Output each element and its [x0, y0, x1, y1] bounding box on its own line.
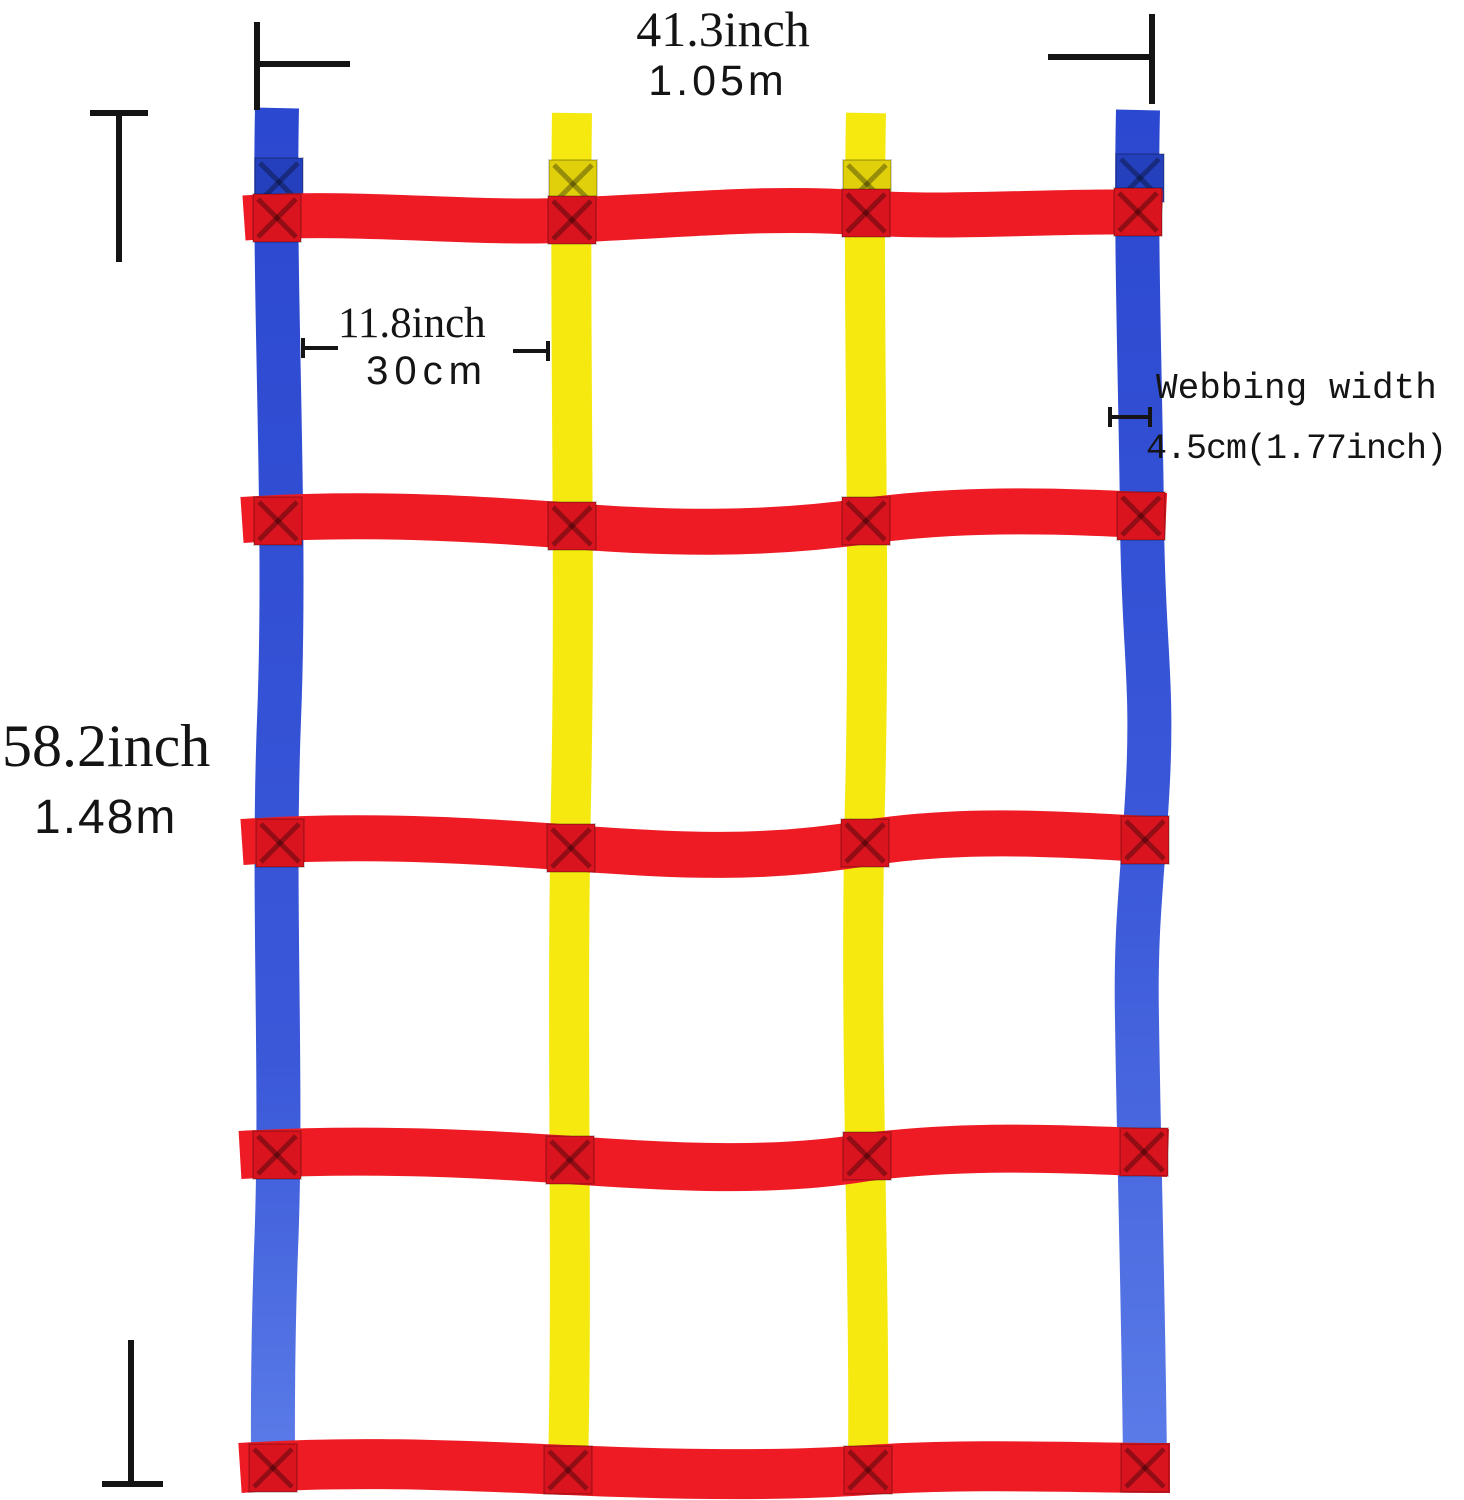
height-label-imperial: 58.2inch	[2, 716, 210, 776]
net-diagram-svg	[0, 0, 1464, 1500]
strap-blue-left	[273, 108, 282, 1468]
height-label-metric: 1.48m	[34, 794, 177, 842]
webbing-width-value: 4.5cm(1.77inch)	[1146, 432, 1446, 467]
spacing-label-imperial: 11.8inch	[338, 302, 486, 345]
spacing-label-metric: 30cm	[352, 351, 502, 391]
diagram-canvas: 41.3inch 1.05m 11.8inch 30cm 58.2inch 1.…	[0, 0, 1464, 1500]
strap-yellow-1	[568, 113, 573, 1468]
width-label-metric: 1.05m	[598, 60, 838, 103]
red-strap-row-3	[242, 833, 1166, 854]
red-strap-row-4	[240, 1149, 1168, 1168]
strap-yellow-2	[863, 113, 868, 1468]
webbing-width-label: Webbing width	[1156, 371, 1437, 407]
red-strap-row-2	[242, 511, 1166, 531]
strap-blue-right	[1137, 110, 1150, 1468]
red-strap-row-1	[244, 210, 1162, 221]
horizontal-straps	[240, 210, 1170, 1474]
width-label-imperial: 41.3inch	[598, 4, 848, 54]
red-strap-row-5	[240, 1464, 1170, 1474]
